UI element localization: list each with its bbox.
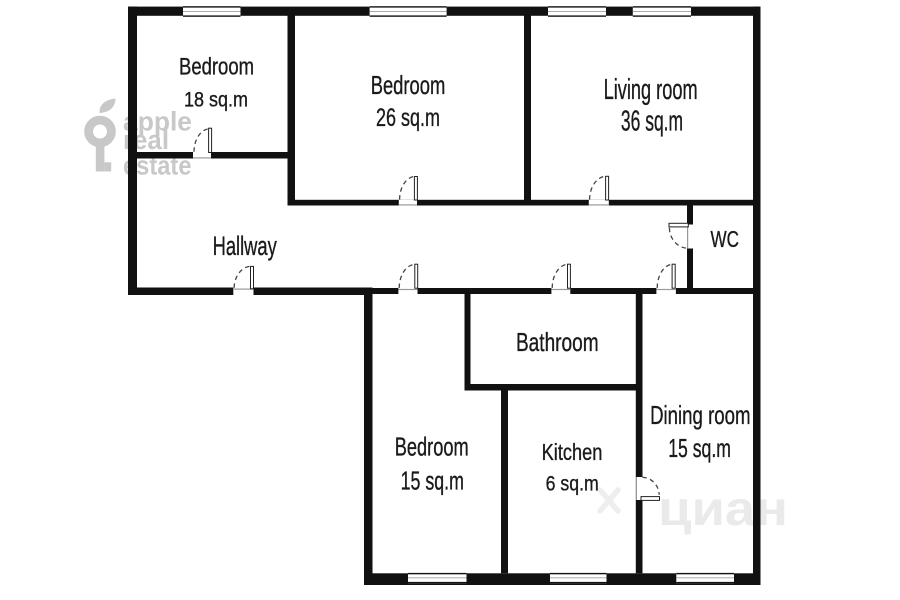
svg-text:Hallway: Hallway	[213, 231, 278, 261]
svg-text:15 sq.m: 15 sq.m	[401, 467, 464, 495]
svg-text:15 sq.m: 15 sq.m	[668, 433, 731, 463]
svg-text:WC: WC	[710, 226, 739, 252]
svg-text:18 sq.m: 18 sq.m	[184, 87, 248, 111]
svg-text:Bedroom: Bedroom	[371, 72, 446, 100]
svg-text:Living room: Living room	[604, 74, 698, 106]
svg-text:26 sq.m: 26 sq.m	[376, 104, 440, 132]
svg-text:Bedroom: Bedroom	[179, 54, 254, 81]
svg-text:циан: циан	[658, 483, 788, 536]
svg-text:36 sq.m: 36 sq.m	[621, 106, 683, 138]
svg-text:Bedroom: Bedroom	[395, 433, 469, 461]
svg-text:Bathroom: Bathroom	[516, 329, 599, 357]
svg-text:6 sq.m: 6 sq.m	[546, 471, 599, 496]
svg-text:Kitchen: Kitchen	[542, 439, 603, 465]
svg-text:Dining room: Dining room	[650, 402, 750, 430]
